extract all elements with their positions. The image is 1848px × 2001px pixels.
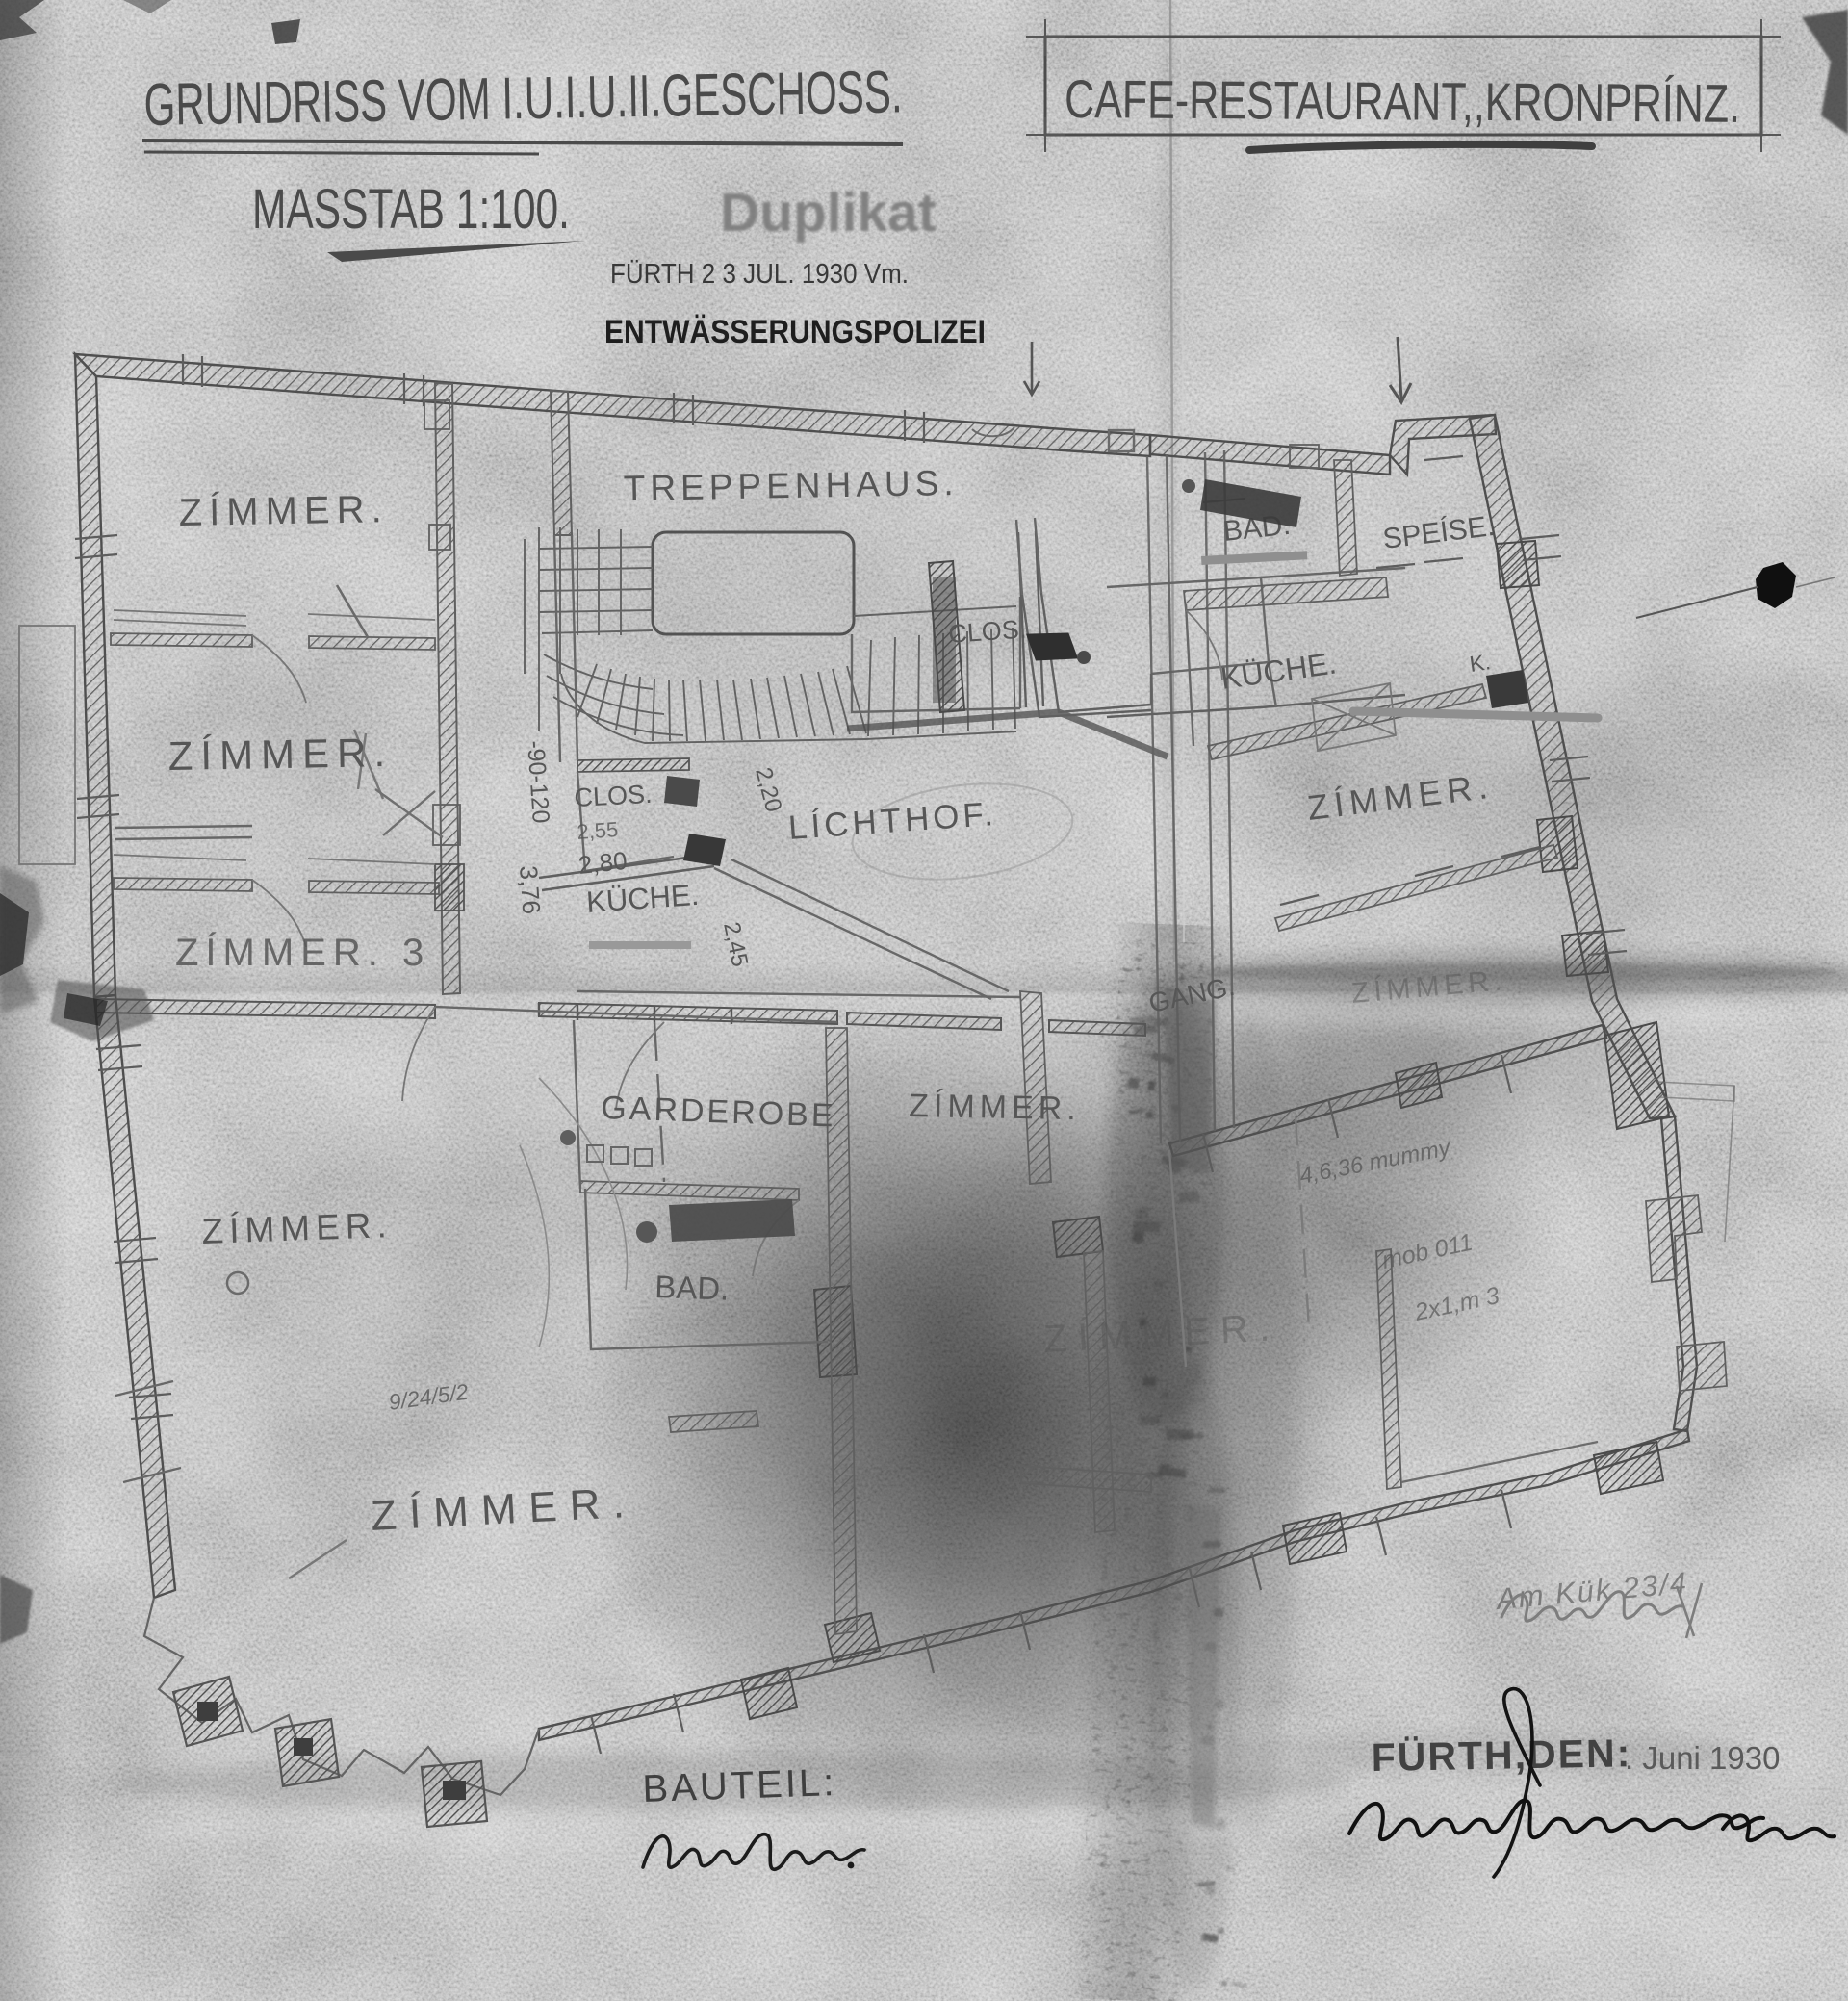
- svg-text:CAFE-RESTAURANT,,KRONPRÍNZ.: CAFE-RESTAURANT,,KRONPRÍNZ.: [1065, 68, 1740, 134]
- svg-text:-90-120: -90-120: [522, 739, 554, 824]
- svg-text:ZÍMMER. 3: ZÍMMER. 3: [175, 931, 430, 974]
- svg-text:K.: K.: [1468, 649, 1492, 677]
- svg-text:2,80: 2,80: [577, 846, 628, 880]
- svg-text:ZÍMMER.: ZÍMMER.: [167, 730, 393, 779]
- svg-text:2,55: 2,55: [577, 817, 619, 844]
- svg-text:3,76: 3,76: [514, 864, 546, 915]
- svg-text:ZÍMMER.: ZÍMMER.: [201, 1205, 394, 1251]
- svg-text:. Juni 1930: . Juni 1930: [1625, 1740, 1780, 1776]
- svg-text:CLOS.: CLOS.: [947, 614, 1027, 649]
- svg-text:FÜRTH 2 3 JUL. 1930 Vm.: FÜRTH 2 3 JUL. 1930 Vm.: [610, 259, 909, 290]
- svg-text:ZÍMMER.: ZÍMMER.: [178, 487, 389, 534]
- svg-text:FÜRTH,DEN:: FÜRTH,DEN:: [1371, 1731, 1631, 1780]
- svg-text:ZÍMMER.: ZÍMMER.: [909, 1088, 1081, 1127]
- svg-text:ENTWÄSSERUNGSPOLIZEI: ENTWÄSSERUNGSPOLIZEI: [604, 314, 986, 350]
- svg-text:BAUTEIL:: BAUTEIL:: [642, 1761, 837, 1810]
- svg-text:GRUNDRISS VOM I.U.I.U.II.GESCH: GRUNDRISS VOM I.U.I.U.II.GESCHOSS.: [143, 59, 903, 139]
- svg-text:BAD.: BAD.: [654, 1269, 730, 1307]
- svg-text:CLOS.: CLOS.: [574, 780, 653, 812]
- svg-text:TREPPENHAUS.: TREPPENHAUS.: [623, 463, 959, 508]
- svg-text:MASSTAB 1:100.: MASSTAB 1:100.: [252, 178, 570, 241]
- svg-text:Duplikat: Duplikat: [720, 182, 937, 244]
